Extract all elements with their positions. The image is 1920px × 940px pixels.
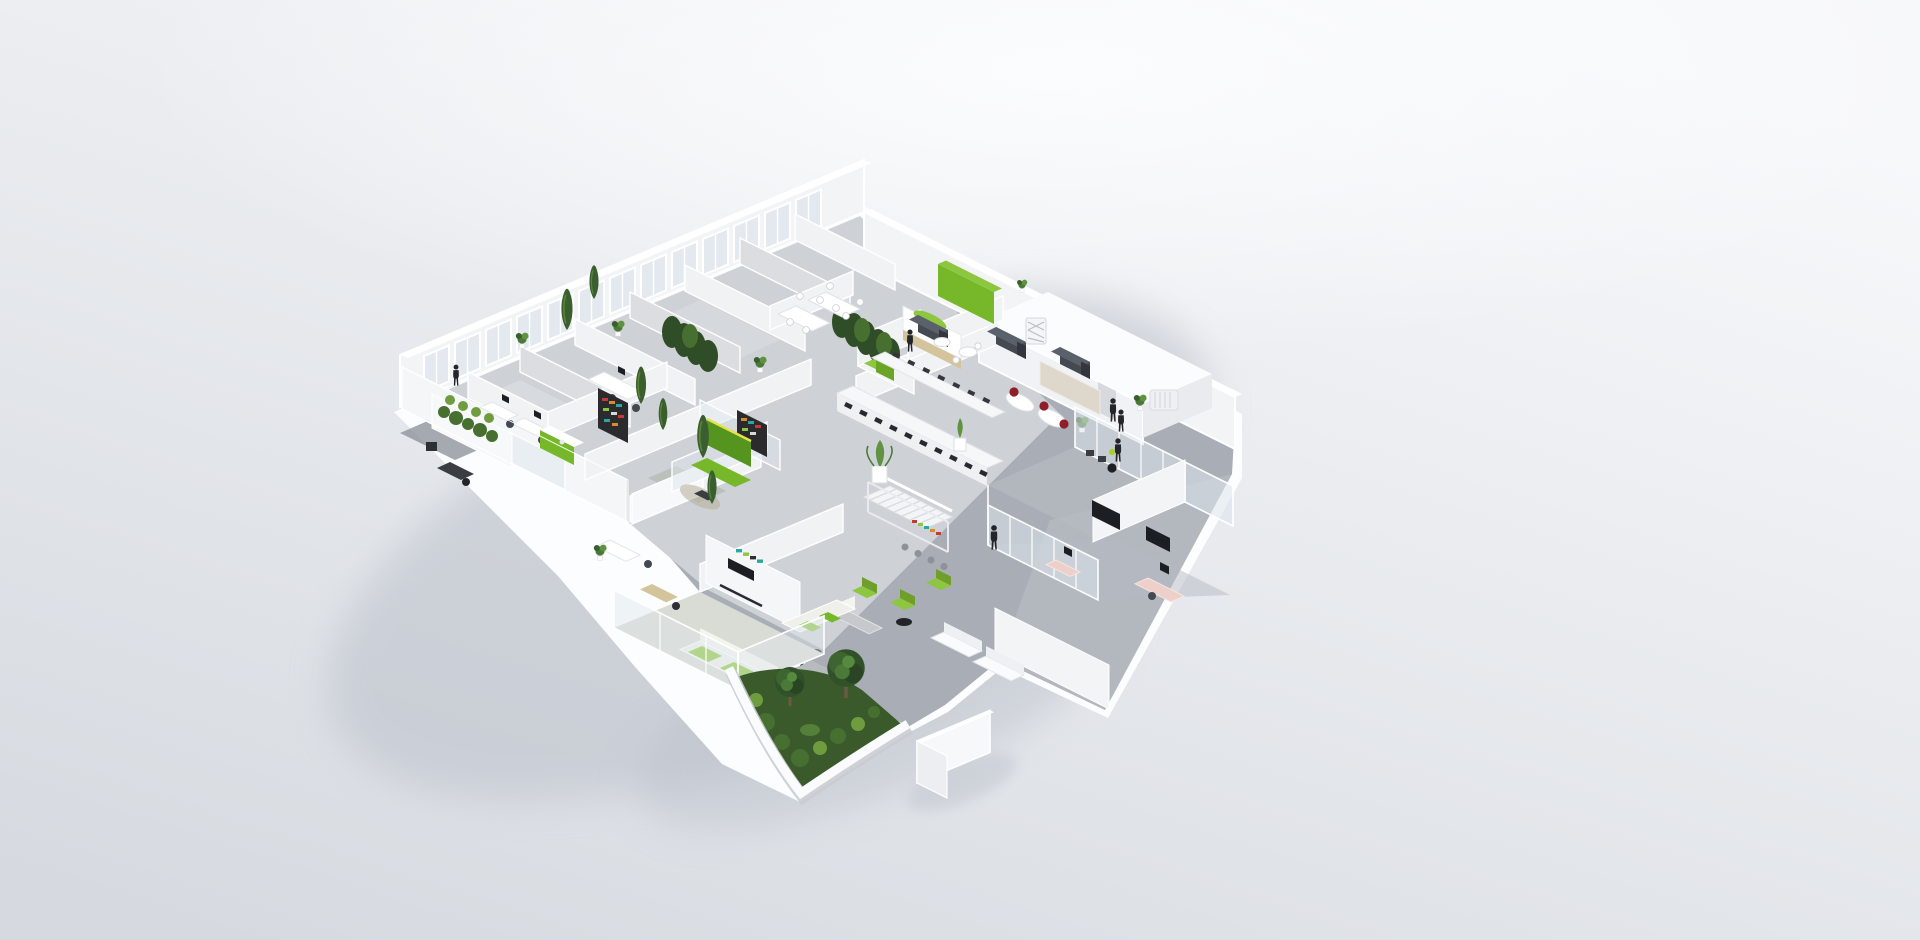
wall-art: [426, 442, 437, 451]
floorplan-render: [0, 0, 1920, 940]
desk-chair: [462, 478, 470, 486]
suite-wall-art: [1086, 450, 1094, 456]
radiator: [1150, 390, 1178, 410]
black-office-chair: [1107, 463, 1116, 472]
ac-unit: [1026, 318, 1046, 344]
render-stage: [0, 0, 1920, 940]
green-bag: [1109, 449, 1115, 455]
round-table: [896, 618, 912, 626]
